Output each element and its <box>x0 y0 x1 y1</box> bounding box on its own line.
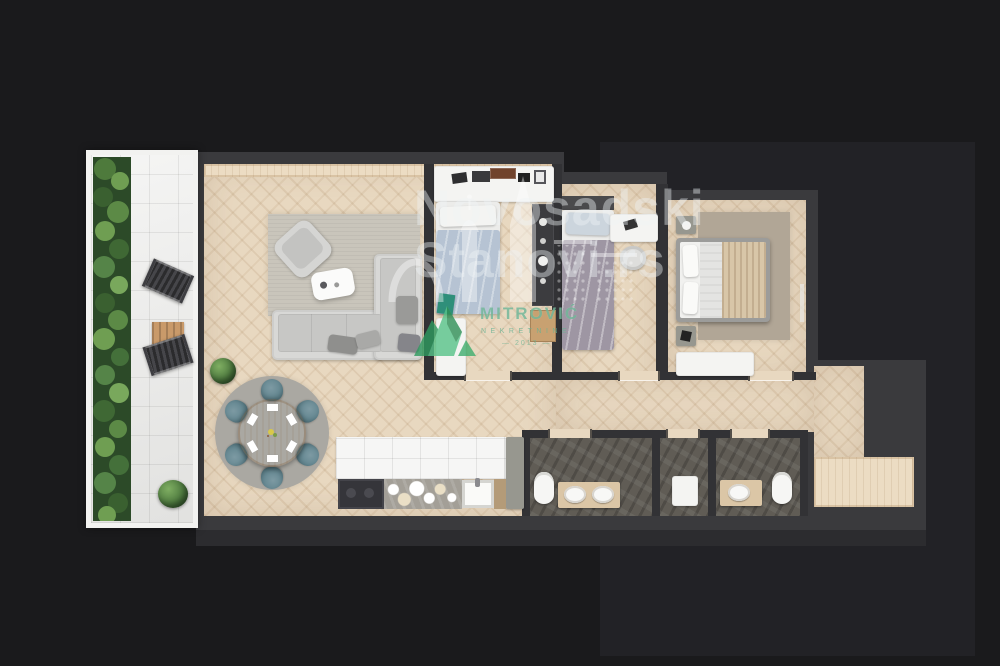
agency-logo: MITROVIĆ NEKRETNINE — 2013 — <box>414 296 644 366</box>
living-room-plant <box>210 358 236 384</box>
bathroom2-sink <box>728 484 750 501</box>
master-bed <box>676 238 770 322</box>
logo-name-text: MITROVIĆ <box>480 304 579 324</box>
master-blanket <box>722 242 766 318</box>
mountain-logo-icon <box>414 296 476 362</box>
bathroom1-sink-left <box>564 486 586 503</box>
watermark-line1: Novosadski <box>414 182 705 234</box>
place-setting <box>247 440 259 453</box>
kitchen-counter-end <box>494 479 506 509</box>
floor-right-extension <box>814 457 914 507</box>
wall-bath-right <box>800 430 808 516</box>
logo-year-text: — 2013 — <box>502 340 551 347</box>
kitchen-cooktop <box>338 479 384 509</box>
door-master-bedroom <box>748 371 794 381</box>
master-dresser <box>676 352 754 376</box>
floor-hallway-right <box>814 366 864 462</box>
kitchen-counter <box>384 479 462 509</box>
washing-machine <box>672 476 698 506</box>
master-door-leaf <box>800 284 804 322</box>
armchair-cushion <box>279 225 326 272</box>
master-sheet <box>700 242 722 318</box>
bathroom1-sink-right <box>592 486 614 503</box>
terrace-plant <box>158 480 188 508</box>
dining-table <box>238 399 306 467</box>
watermark-line2: Stanovi.rs <box>414 234 666 286</box>
cooktop-burner <box>346 488 356 498</box>
table-decor <box>320 281 328 289</box>
floorplan-scene: Novosadski Stanovi.rs MITROVIĆ NEKRETNIN… <box>0 0 1000 666</box>
place-setting <box>267 455 278 462</box>
door-bedroom1 <box>464 371 512 381</box>
floor-hallway <box>556 378 816 432</box>
table-centerpiece <box>268 429 274 435</box>
nightstand-book <box>680 330 692 342</box>
platform-bottom-edge <box>196 530 926 546</box>
cooktop-burner <box>364 488 374 498</box>
dining-chair-seat <box>261 379 283 401</box>
master-pillow <box>682 245 699 278</box>
master-pillow <box>682 282 699 315</box>
wall-bath-mid1 <box>652 430 660 516</box>
dining-chair <box>261 379 283 401</box>
logo-subtitle-text: NEKRETNINE <box>481 328 571 335</box>
dining-chair <box>261 467 283 489</box>
place-setting <box>286 440 298 453</box>
terrace <box>86 150 198 528</box>
wall-bath-mid2 <box>708 430 716 516</box>
kitchen-fridge <box>506 437 524 509</box>
door-bedroom2 <box>618 371 660 381</box>
place-setting <box>286 413 298 426</box>
place-setting <box>247 413 259 426</box>
bathroom2-toilet <box>772 472 792 504</box>
terrace-hedge <box>93 157 131 521</box>
bathroom1-toilet <box>534 472 554 504</box>
kitchen-cabinets <box>336 437 506 479</box>
kitchen-faucet <box>475 478 480 487</box>
master-nightstand-bottom <box>676 326 696 346</box>
kitchen-sink <box>462 480 494 508</box>
place-setting <box>267 404 278 411</box>
